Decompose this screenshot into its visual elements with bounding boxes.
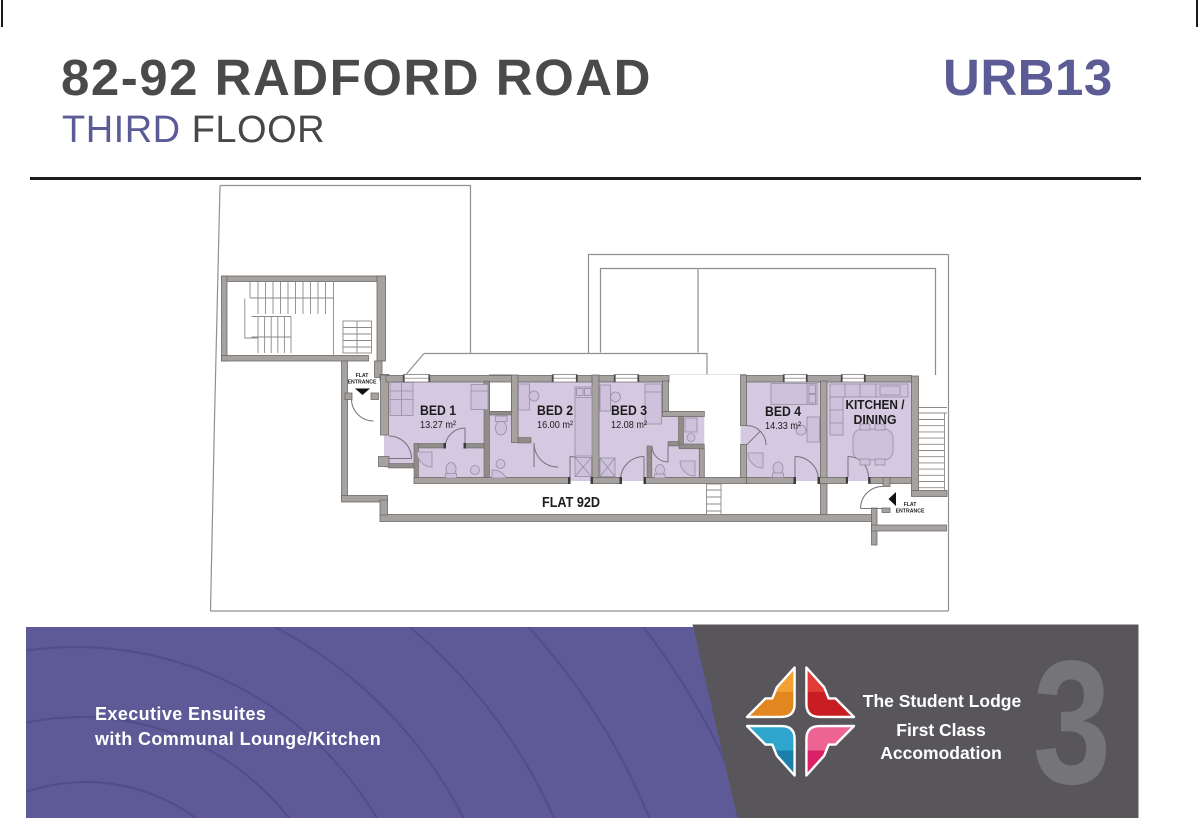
svg-text:First Class: First Class [896,720,986,740]
svg-text:3: 3 [1033,624,1111,821]
svg-text:Accomodation: Accomodation [880,743,1002,763]
svg-text:The Student Lodge: The Student Lodge [863,691,1022,711]
